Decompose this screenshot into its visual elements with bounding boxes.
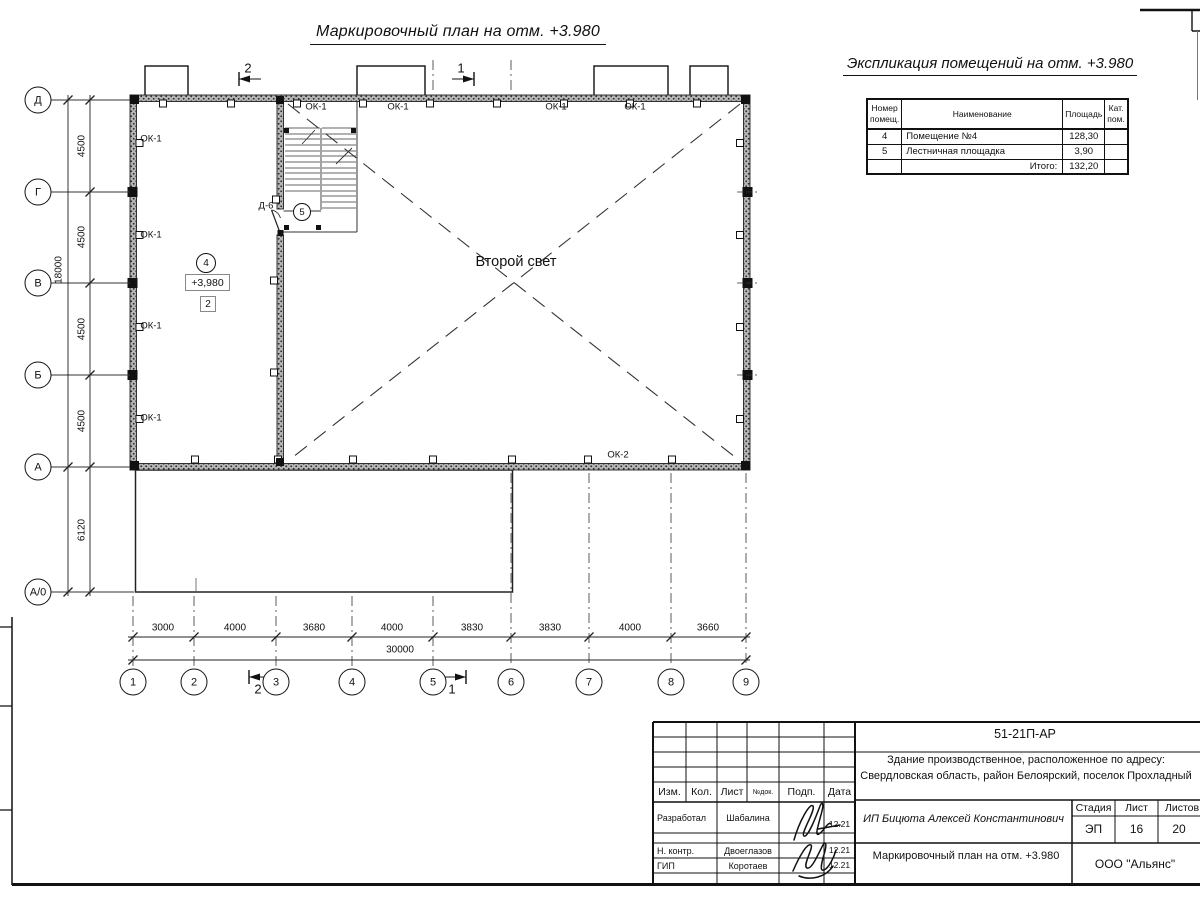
sheet-title: Маркировочный план на отм. +3.980: [872, 849, 1060, 863]
role-name: Коротаев: [717, 861, 779, 871]
drawing-sheet: Маркировочный план на отм. +3.980 Экспли…: [0, 0, 1200, 900]
role-name: Шабалина: [717, 813, 779, 823]
sheets-header: Листов: [1158, 802, 1200, 814]
section-mark-digit: 1: [457, 61, 464, 76]
col-data: Дата: [824, 786, 855, 798]
col-list: Лист: [717, 786, 747, 798]
sheets-total: 20: [1158, 822, 1200, 836]
elevation-mark: +3,980: [185, 274, 230, 291]
col-izm: Изм.: [653, 786, 686, 798]
sheet-number: 16: [1115, 822, 1158, 836]
floor-type-mark: 2: [200, 296, 216, 312]
section-mark-digit: 1: [448, 682, 455, 697]
section-mark-digit: 2: [254, 682, 261, 697]
section-mark-digit: 2: [244, 61, 251, 76]
role-date: 12.21: [824, 845, 855, 855]
room-number-bubble: 4: [196, 253, 216, 273]
col-podp: Подп.: [779, 786, 824, 798]
role-name: Двоеглазов: [717, 846, 779, 856]
role-label: ГИП: [657, 861, 717, 871]
project-address: Здание производственное, расположенное п…: [859, 753, 1193, 784]
role-label: Н. контр.: [657, 846, 717, 856]
stage-value: ЭП: [1072, 822, 1115, 836]
client-name: ИП Бицюта Алексей Константинович: [857, 813, 1070, 825]
sheet-header: Лист: [1115, 802, 1158, 814]
stage-header: Стадия: [1072, 802, 1115, 814]
organization-name: ООО "Альянс": [1074, 857, 1196, 871]
role-label: Разработал: [657, 813, 717, 823]
room-number-bubble: 5: [293, 203, 311, 221]
role-date: 12.21: [824, 860, 855, 870]
col-kol: Кол.: [686, 786, 717, 798]
role-date: 12.21: [824, 819, 855, 829]
door-mark-label: Д-6: [259, 201, 274, 212]
document-code: 51-21П-АР: [857, 727, 1193, 741]
col-ndoc: №док.: [747, 789, 779, 796]
void-space-label: Второй свет: [475, 254, 556, 270]
